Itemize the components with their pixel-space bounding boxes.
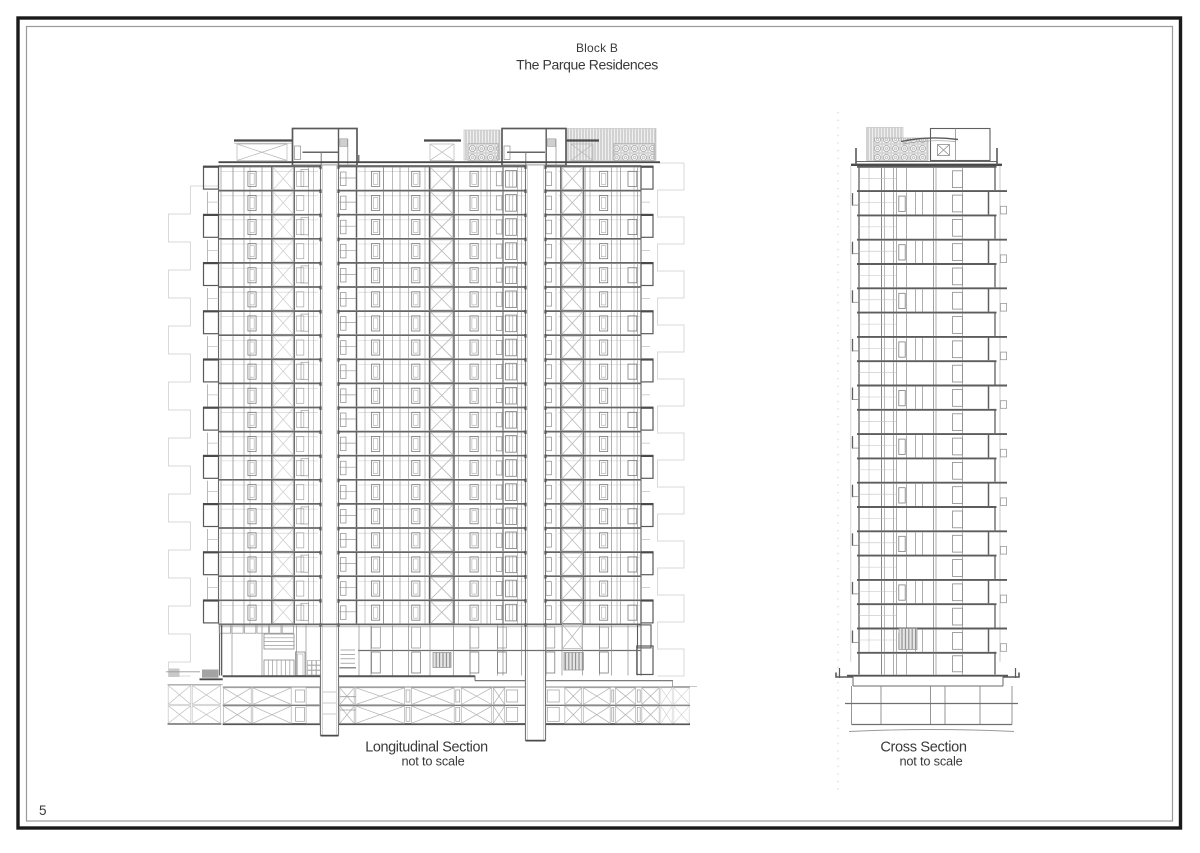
svg-text:The Parque Residences: The Parque Residences	[516, 56, 658, 72]
svg-text:Block B: Block B	[576, 41, 618, 55]
svg-text:not to scale: not to scale	[899, 753, 962, 768]
svg-text:5: 5	[39, 803, 47, 818]
svg-text:not to scale: not to scale	[401, 753, 464, 768]
